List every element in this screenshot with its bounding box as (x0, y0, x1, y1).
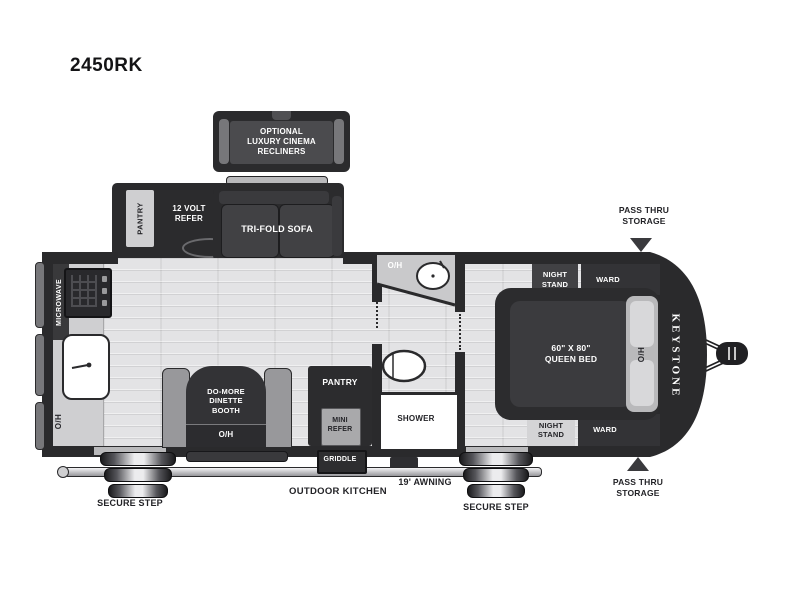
pantry-label: PANTRY (308, 374, 372, 390)
kitchen-overhead-label: O/H (50, 398, 68, 444)
secure-step-right-label: SECURE STEP (444, 501, 548, 514)
secure-step-right-graphic (459, 452, 533, 500)
awning-label: 19' AWNING (390, 476, 460, 489)
mini-refer-label: MINI REFER (321, 408, 359, 444)
pass-thru-bottom-arrow-icon (627, 457, 649, 471)
stove-knob-3 (102, 300, 107, 306)
dinette-bench-right (264, 368, 292, 448)
step-tread (104, 468, 172, 482)
floorplan-canvas: 2450RK OPTIONAL LUXURY CINEMA RECLINERS … (0, 0, 800, 600)
pass-thru-top-arrow-icon (630, 238, 652, 252)
kitchen-sink (62, 334, 110, 400)
dinette-overhead-label: O/H (186, 424, 266, 446)
step-tread (100, 452, 176, 466)
secure-step-left-label: SECURE STEP (78, 497, 182, 510)
step-tread (108, 484, 168, 498)
bath-door-right (459, 314, 461, 350)
toilet-graphic (380, 348, 428, 384)
step-tread (459, 452, 533, 466)
secure-step-left-graphic (100, 452, 176, 498)
step-tread (463, 468, 529, 482)
rear-trim-middle (35, 334, 45, 396)
stove-grate (71, 275, 97, 307)
bath-overhead-label: O/H (381, 259, 409, 272)
pantry-cabinet: PANTRY MINI REFER (308, 366, 372, 446)
dinette-label: DO-MORE DINETTE BOOTH (186, 380, 266, 422)
rear-trim-bottom (35, 402, 45, 450)
pass-thru-top-label: PASS THRU STORAGE (596, 201, 692, 231)
rear-trim-top (35, 262, 45, 328)
pass-thru-bottom-label: PASS THRU STORAGE (586, 473, 690, 503)
bed-overhead-label: O/H (626, 296, 658, 412)
griddle-label: GRIDDLE (317, 450, 363, 470)
stove (64, 268, 112, 318)
wall-top-left (42, 252, 118, 264)
queen-bed-label: 60" X 80" QUEEN BED (510, 301, 632, 407)
brand-name: KEYSTONE (660, 300, 690, 412)
shower-label: SHOWER (378, 392, 454, 446)
stove-knob-2 (102, 288, 107, 294)
step-tread (467, 484, 525, 498)
outdoor-kitchen-label: OUTDOOR KITCHEN (268, 485, 408, 498)
slide-rail (186, 451, 288, 462)
dinette-table: DO-MORE DINETTE BOOTH O/H (186, 366, 266, 446)
stove-knob-1 (102, 276, 107, 282)
awning-end-cap (57, 466, 69, 478)
